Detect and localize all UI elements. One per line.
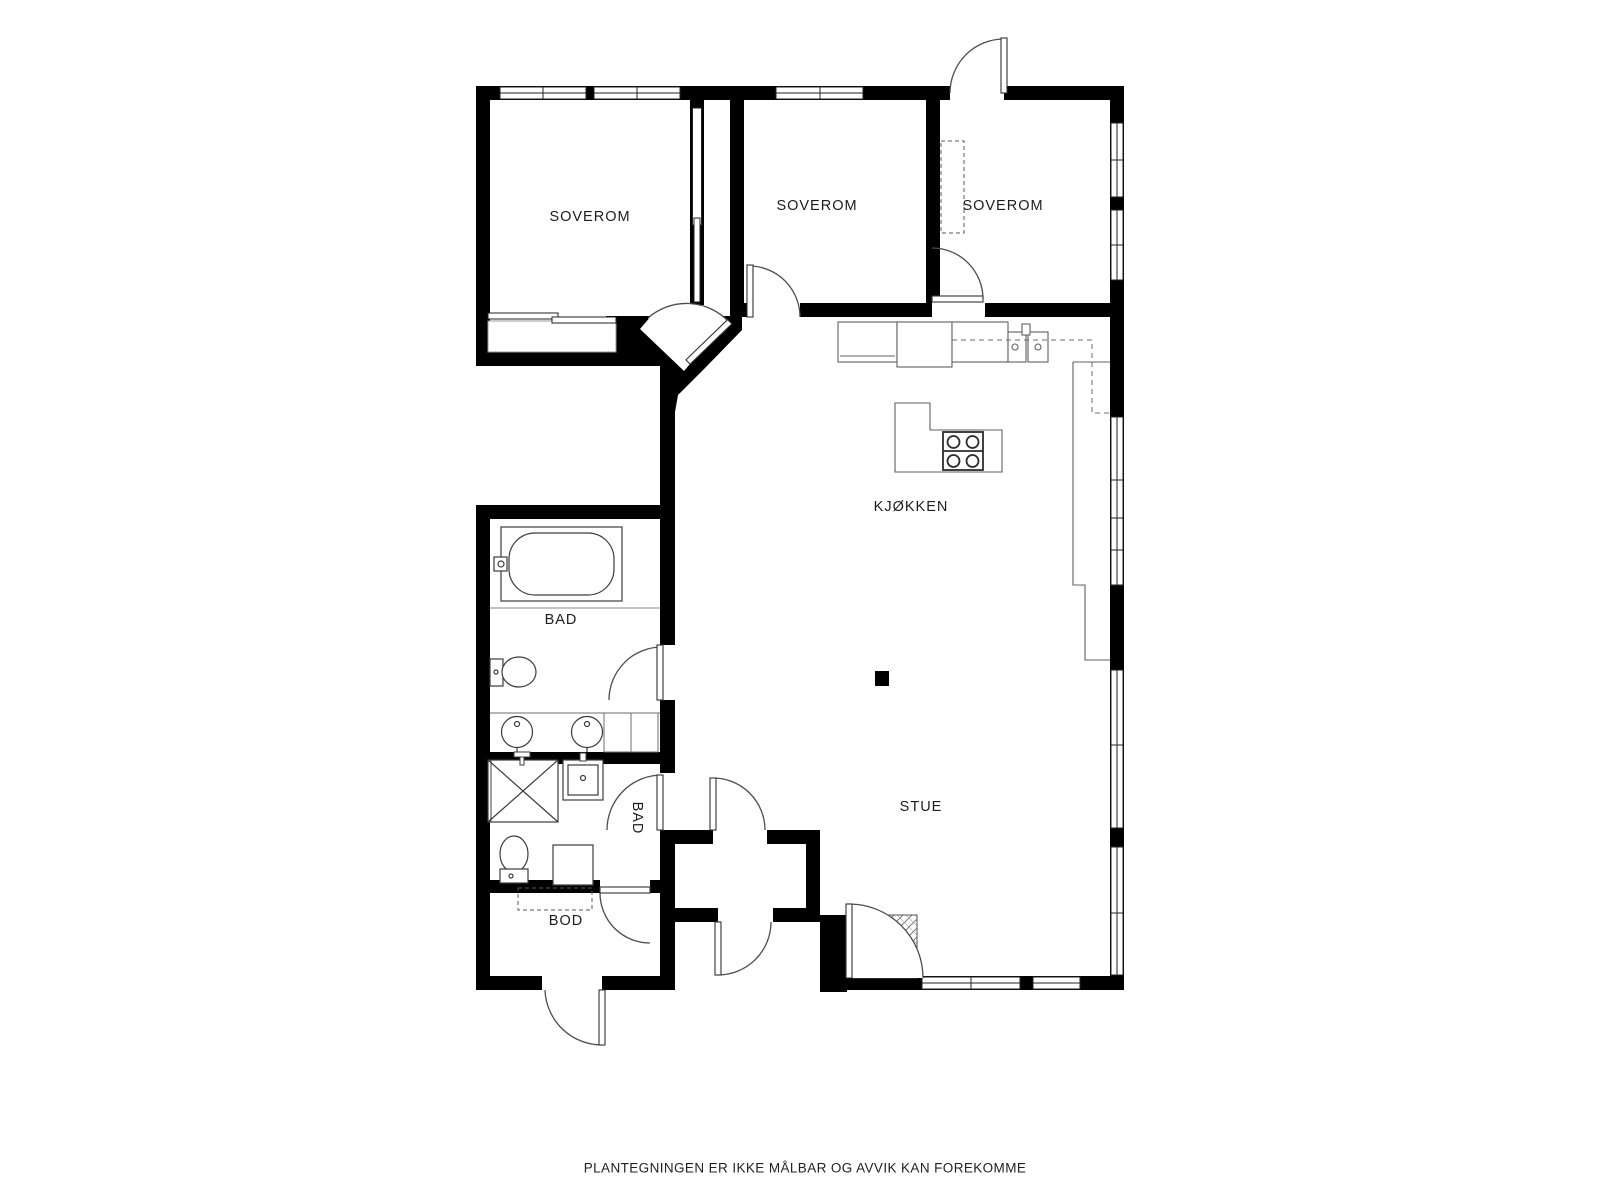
stue-entry-door-leaf [846, 904, 852, 978]
toilet1-bowl [502, 657, 536, 687]
faucet-dot-left [1012, 344, 1018, 350]
window-bed3-a [1111, 123, 1123, 197]
room-label-bad-2: BAD [629, 802, 645, 835]
floor-plan-page: SOVEROM SOVEROM SOVEROM KJØKKEN STUE BAD… [0, 0, 1600, 1200]
room-label-soverom-1: SOVEROM [549, 209, 630, 225]
bed2-door-leaf [747, 265, 753, 317]
pocket-door-channel [693, 108, 702, 225]
window-stue-bottom-a [922, 977, 1020, 989]
faucet-dot-right [1035, 344, 1041, 350]
sliding-door-leaf-a [488, 313, 558, 319]
room-label-soverom-2: SOVEROM [776, 198, 857, 214]
bed1-closet-nook [488, 321, 616, 352]
counter-right-strip [1073, 362, 1110, 660]
window-bed1-b [594, 87, 680, 99]
sink-vent [1022, 324, 1030, 335]
burner [967, 455, 979, 467]
opening-vestibule-top [713, 829, 767, 845]
wall-bed2-bed3-divider [926, 100, 940, 317]
bod-interior-door-arc [600, 893, 650, 943]
bod-interior-door-leaf [600, 887, 650, 893]
sliding-door-leaf-b [552, 317, 616, 323]
cooktop [943, 432, 983, 470]
bathroom2-fixtures [488, 752, 603, 885]
room-label-bad-1: BAD [545, 612, 578, 628]
opening-entrance [950, 85, 1004, 101]
wall-left-lower [476, 505, 490, 990]
toilet2-tank [500, 869, 528, 883]
room-label-soverom-3: SOVEROM [962, 198, 1043, 214]
wall-kitchen-left [660, 368, 675, 519]
entrance-door-arc [950, 39, 1004, 93]
bathroom1-fixtures [490, 527, 660, 752]
burner [948, 455, 960, 467]
small-sink-faucet [581, 776, 586, 781]
small-sink-tap [580, 753, 586, 761]
wall-bed2-left [730, 100, 744, 317]
bod-exterior-door-leaf [599, 990, 605, 1045]
window-kitchen [1111, 417, 1123, 585]
window-stue-bottom-b [1033, 977, 1080, 989]
burner [948, 436, 960, 448]
window-bed1-a [500, 87, 586, 99]
bathtub-inner [509, 533, 614, 595]
floor-plan-drawing [0, 0, 1600, 1200]
bath1-door-leaf [657, 645, 663, 700]
room-label-bod: BOD [549, 913, 583, 929]
entrance-door-leaf [1001, 38, 1007, 93]
window-bed2 [776, 87, 863, 99]
toilet2-bowl [500, 836, 528, 872]
oven-cabinet [897, 322, 952, 367]
room-label-kjokken: KJØKKEN [874, 499, 949, 515]
vanity-faucet-left [515, 722, 520, 727]
counter-section [952, 322, 1008, 362]
bed3-door-leaf [932, 296, 983, 302]
opening-bed3 [932, 302, 985, 318]
window-stue-a [1111, 670, 1123, 828]
wall-bath-top [476, 505, 675, 519]
opening-vestibule-bottom [718, 907, 773, 923]
bad2-door-leaf [657, 775, 663, 830]
opening-bod-exterior [542, 975, 602, 991]
vanity-faucet-right [585, 722, 590, 727]
pocket-door-leaf [694, 218, 700, 302]
bathtub-faucet-dot [498, 561, 504, 567]
vestibule-top-door-arc [713, 778, 765, 830]
bed3-wardrobe-dashed [941, 141, 964, 233]
opening-bed2 [748, 302, 800, 318]
window-bed3-b [1111, 210, 1123, 280]
vestibule-bottom-door-leaf [715, 922, 721, 975]
wall-entry-side [820, 915, 847, 992]
burner [967, 436, 979, 448]
disclaimer-text: PLANTEGNINGEN ER IKKE MÅLBAR OG AVVIK KA… [584, 1161, 1027, 1176]
room-label-stue: STUE [900, 799, 943, 815]
toilet2-button [509, 874, 513, 878]
vestibule-top-door-leaf [710, 778, 716, 830]
toilet1-button [494, 670, 498, 674]
bath1-door-arc [609, 647, 662, 700]
window-stue-b [1111, 847, 1123, 975]
bod-exterior-door-arc [545, 990, 602, 1045]
fireplace-column [875, 671, 889, 686]
vestibule-bottom-door-arc [718, 922, 771, 975]
washing-machine [553, 845, 593, 885]
